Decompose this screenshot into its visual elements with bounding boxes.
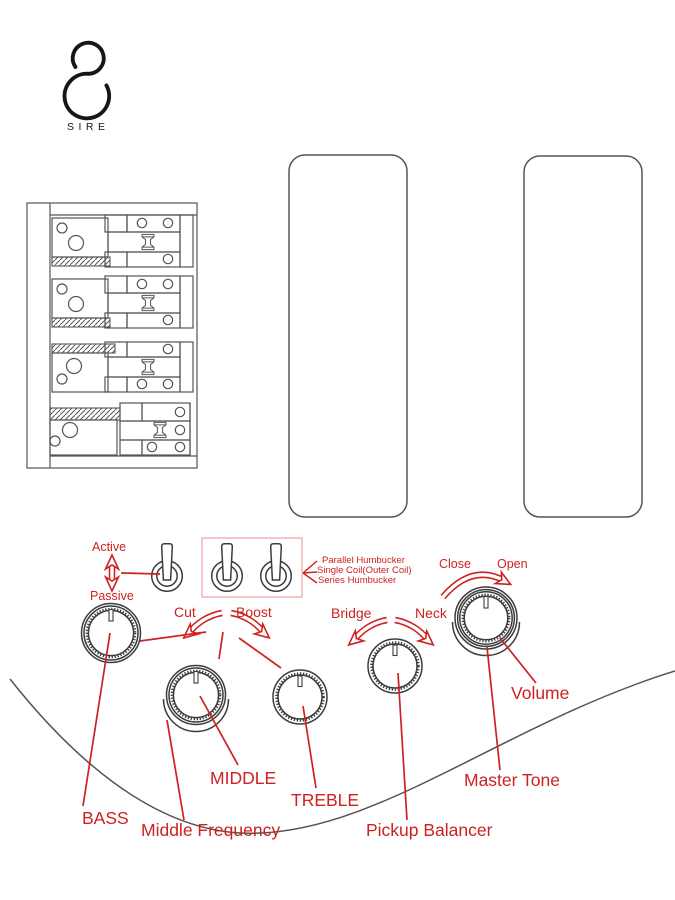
coil-toggle-2: [261, 544, 292, 592]
middle-knob: [164, 666, 229, 732]
volume-knob: [453, 587, 520, 656]
coil-option-series: Series Humbucker: [318, 576, 396, 586]
active-passive-arrow: [106, 555, 119, 591]
sire-bass-controls-diagram: SIRE Active Passive Parallel Humbucker S…: [0, 0, 675, 900]
neck-pickup: [289, 155, 407, 517]
boost-label: Boost: [236, 605, 272, 619]
bass-label: BASS: [82, 810, 129, 828]
brand-wordmark: SIRE: [67, 122, 110, 133]
coil-toggle-1: [212, 544, 243, 592]
passive-label: Passive: [90, 590, 134, 603]
treble-knob: [273, 670, 327, 724]
treble-label: TREBLE: [291, 792, 359, 810]
cut-label: Cut: [174, 605, 196, 619]
active-label: Active: [92, 541, 126, 554]
bridge-saddle-1: [52, 215, 193, 267]
pickup-balancer-label: Pickup Balancer: [366, 822, 492, 840]
open-label: Open: [497, 558, 528, 571]
pickup-balancer-knob: [368, 639, 422, 693]
diagram-artwork: [0, 0, 675, 900]
active-passive-toggle: [152, 544, 183, 592]
bass-knob: [82, 604, 141, 663]
middle-label: MIDDLE: [210, 770, 276, 788]
bridge-drawing: [27, 203, 197, 468]
close-label: Close: [439, 558, 471, 571]
middle-frequency-label: Middle Frequency: [141, 822, 280, 840]
neck-label: Neck: [415, 606, 447, 620]
volume-label: Volume: [511, 685, 569, 703]
bridge-saddle-4: [50, 403, 190, 455]
sire-logo-icon: [65, 43, 110, 119]
pickups: [289, 155, 642, 517]
bridge-saddle-2: [52, 276, 193, 328]
master-tone-label: Master Tone: [464, 772, 560, 790]
bridge-label: Bridge: [331, 606, 371, 620]
bridge-pickup: [524, 156, 642, 517]
bridge-saddle-3: [52, 342, 193, 392]
